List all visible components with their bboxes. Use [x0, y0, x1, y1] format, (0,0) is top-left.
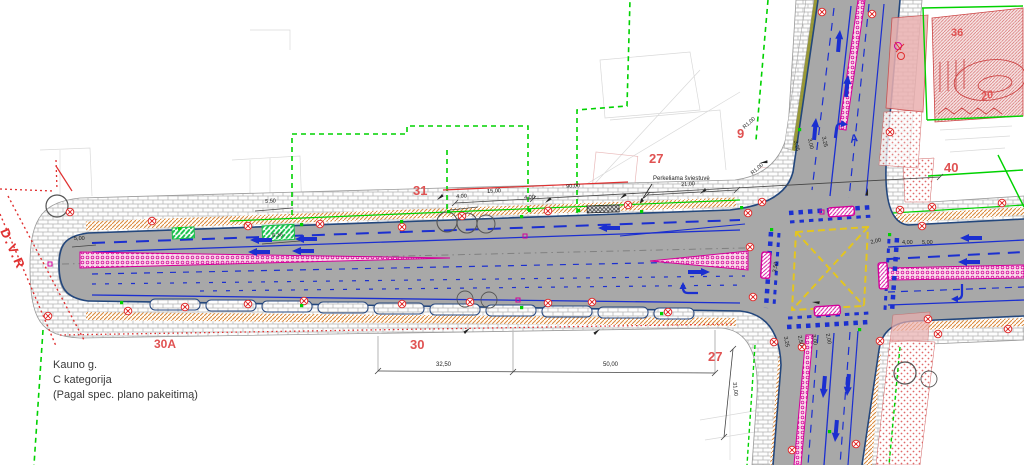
- dimension-label: 50,00: [603, 362, 618, 368]
- dimension-label: 32,50: [436, 362, 451, 368]
- relocated-structure: [587, 205, 619, 213]
- street-title-block: Kauno g. C kategorija (Pagal spec. plano…: [53, 358, 198, 403]
- street-name: Kauno g.: [53, 358, 198, 373]
- dimension-label: 4,00: [456, 193, 467, 200]
- dimension-label: 4,00: [524, 194, 535, 201]
- parcel-number-40: 40: [944, 160, 958, 175]
- parcel-number-31: 31: [413, 183, 427, 198]
- parcel-number-27-top: 27: [649, 151, 663, 166]
- dimension-label: 5,00: [922, 240, 933, 246]
- street-category: C kategorija: [53, 373, 198, 388]
- dimension-label: 31,00: [731, 382, 738, 396]
- dimension-label: 6,36: [272, 232, 283, 239]
- street-note: (Pagal spec. plano pakeitimą): [53, 388, 198, 403]
- dimension-label: 4,00: [902, 240, 913, 246]
- hatched-building-area: [886, 8, 1024, 122]
- dimension-label: 15,00: [487, 188, 501, 195]
- parcel-number-30: 30: [410, 337, 424, 352]
- parcel-number-36: 36: [951, 27, 963, 39]
- dimension-label: 21,00: [681, 181, 695, 188]
- dimension-label: 90,00: [566, 183, 580, 190]
- site-plan-canvas: D.V.R 31 27 9 40 36 20 30A 30 27 A Perke…: [0, 0, 1024, 465]
- parcel-number-30a: 30A: [154, 337, 176, 351]
- dimension-label: 5,50: [265, 198, 276, 205]
- parcel-number-27-bottom: 27: [708, 349, 722, 364]
- dimension-label: 5,00: [74, 236, 85, 242]
